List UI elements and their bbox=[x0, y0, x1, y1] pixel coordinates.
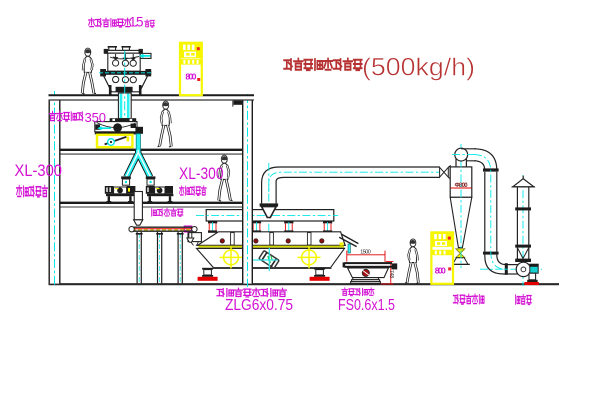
svg-text:1.5: 1.5 bbox=[129, 15, 144, 30]
svg-text:748: 748 bbox=[388, 270, 394, 278]
svg-text:(500kg/h): (500kg/h) bbox=[362, 53, 475, 81]
svg-text:ZLG6x0.75: ZLG6x0.75 bbox=[225, 297, 293, 314]
svg-text:FS0.6x1.5: FS0.6x1.5 bbox=[338, 297, 395, 314]
svg-text:800: 800 bbox=[435, 266, 446, 276]
svg-text:XL-300: XL-300 bbox=[15, 162, 63, 180]
svg-text:350: 350 bbox=[85, 110, 107, 125]
svg-text:1500: 1500 bbox=[360, 250, 371, 256]
svg-text:XL-300: XL-300 bbox=[179, 165, 224, 183]
svg-text:800: 800 bbox=[185, 71, 196, 81]
